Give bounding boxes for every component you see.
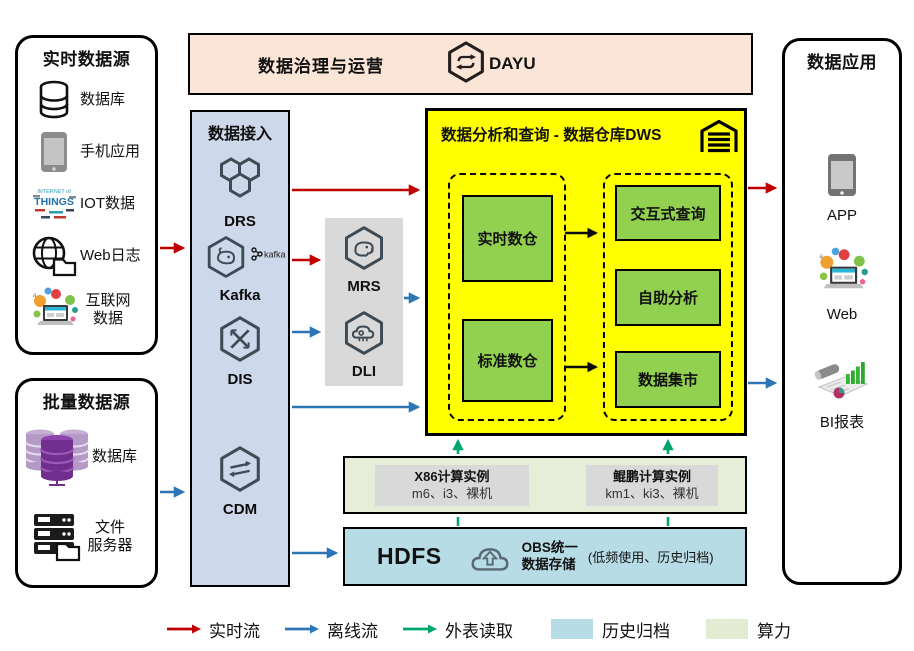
module-self-service-analysis: 自助分析 — [615, 269, 721, 326]
service-mrs: MRS — [341, 224, 387, 295]
obs-label: OBS统一 数据存储 — [522, 540, 578, 574]
source-item-label: 数据库 — [80, 91, 125, 109]
app-item-label: BI报表 — [820, 411, 864, 432]
web-collage-icon: a — [816, 247, 868, 302]
app-phone-icon — [827, 153, 857, 202]
source-item-iot: INTERNET of THINGS IOT数据 — [18, 178, 155, 230]
legend-offline-flow: 离线流 — [284, 617, 378, 642]
service-label: DIS — [227, 371, 252, 388]
dayu-label: DAYU — [489, 54, 536, 74]
mrs-icon — [341, 224, 387, 277]
svg-text:kafka: kafka — [264, 250, 286, 260]
database-icon — [28, 80, 80, 120]
source-item-label: IOT数据 — [80, 195, 135, 213]
service-dli: DLI — [341, 309, 387, 380]
blue-arrow-icon — [284, 622, 320, 636]
red-arrow-icon — [166, 622, 202, 636]
purple-database-icon — [22, 426, 92, 488]
dws-title: 数据分析和查询 - 数据仓库DWS — [441, 123, 661, 145]
cdm-icon — [216, 444, 264, 499]
service-label: Kafka — [220, 287, 261, 304]
realtime-sources-title: 实时数据源 — [18, 45, 155, 70]
app-item-label: APP — [827, 207, 857, 224]
dis-icon — [216, 314, 264, 369]
service-dis: DIS — [192, 314, 288, 388]
source-item-database: 数据库 — [18, 74, 155, 126]
data-apps-title: 数据应用 — [785, 48, 899, 73]
source-item-label: Web日志 — [80, 247, 141, 265]
source-item-label: 文件 服务器 — [82, 519, 138, 555]
app-item-bi: BI报表 — [785, 357, 899, 432]
data-access-title: 数据接入 — [192, 120, 288, 144]
internet-collage-icon: a — [28, 287, 80, 333]
service-label: DRS — [224, 213, 256, 230]
governance-bar: 数据治理与运营 DAYU — [188, 33, 753, 95]
storage-box: HDFS OBS统一 数据存储 (低频使用、历史归档) — [343, 527, 747, 586]
module-data-mart: 数据集市 — [615, 351, 721, 408]
app-item-app: APP — [785, 153, 899, 224]
warehouse-icon — [698, 118, 740, 159]
compute-swatch — [706, 619, 748, 639]
drs-icon — [214, 152, 266, 211]
module-interactive-query: 交互式查询 — [615, 185, 721, 241]
file-server-icon — [30, 512, 82, 562]
svg-text:INTERNET of: INTERNET of — [37, 189, 71, 195]
source-item-file-server: 文件 服务器 — [18, 499, 155, 575]
dayu-logo: DAYU — [446, 40, 536, 89]
processing-box: MRS DLI — [325, 218, 403, 386]
legend-compute-power: 算力 — [706, 617, 791, 642]
app-item-label: Web — [827, 306, 858, 323]
data-apps-box: 数据应用 APP a — [782, 38, 902, 585]
service-kafka: kafka Kafka — [192, 234, 288, 304]
green-arrow-icon — [402, 622, 438, 636]
legend-external-read: 外表读取 — [402, 617, 513, 642]
app-item-web: a Web — [785, 247, 899, 323]
archive-swatch — [551, 619, 593, 639]
source-item-mobile: 手机应用 — [18, 126, 155, 178]
dli-icon — [341, 309, 387, 362]
bi-report-icon — [813, 357, 871, 408]
service-drs: DRS — [192, 152, 288, 230]
iot-wordcloud-icon: INTERNET of THINGS — [28, 183, 80, 225]
module-realtime-warehouse: 实时数仓 — [462, 195, 553, 282]
mobile-phone-icon — [28, 131, 80, 173]
x86-instance: X86计算实例 m6、i3、裸机 — [375, 465, 529, 506]
source-item-label: 数据库 — [92, 448, 137, 466]
hdfs-label: HDFS — [377, 543, 442, 570]
source-item-internet: a 互联网 数据 — [18, 282, 155, 338]
batch-sources-box: 批量数据源 — [15, 378, 158, 588]
source-item-batch-database: 数据库 — [18, 415, 155, 499]
legend-realtime-flow: 实时流 — [166, 617, 260, 642]
source-item-label: 手机应用 — [80, 143, 140, 161]
kafka-logo-badge: kafka — [250, 246, 288, 267]
service-label: DLI — [352, 363, 376, 380]
svg-text:THINGS: THINGS — [34, 196, 74, 208]
service-label: MRS — [347, 278, 380, 295]
source-item-label: 互联网 数据 — [80, 292, 136, 328]
storage-note: (低频使用、历史归档) — [588, 547, 714, 566]
service-cdm: CDM — [192, 444, 288, 518]
batch-sources-title: 批量数据源 — [18, 388, 155, 413]
dayu-hexagon-icon — [446, 40, 486, 89]
governance-title: 数据治理与运营 — [258, 52, 384, 77]
service-label: CDM — [223, 501, 257, 518]
cloud-upload-icon — [468, 540, 512, 574]
dws-box: 数据分析和查询 - 数据仓库DWS 实时数仓 标准数仓 交互式查询 自助分析 数… — [425, 108, 747, 436]
globe-folder-icon — [28, 235, 80, 277]
kafka-icon: kafka — [204, 234, 248, 285]
kunpeng-instance: 鲲鹏计算实例 km1、ki3、裸机 — [586, 465, 718, 506]
compute-box: X86计算实例 m6、i3、裸机 鲲鹏计算实例 km1、ki3、裸机 — [343, 456, 747, 514]
legend-history-archive: 历史归档 — [551, 617, 670, 642]
source-item-weblog: Web日志 — [18, 230, 155, 282]
realtime-sources-box: 实时数据源 数据库 手机应用 — [15, 35, 158, 355]
legend: 实时流 离线流 外表读取 历史归档 算力 — [166, 613, 791, 645]
module-standard-warehouse: 标准数仓 — [462, 319, 553, 402]
architecture-diagram: 实时数据源 数据库 手机应用 — [0, 0, 914, 651]
svg-text:a: a — [819, 253, 823, 260]
data-access-column: 数据接入 DRS — [190, 110, 290, 587]
